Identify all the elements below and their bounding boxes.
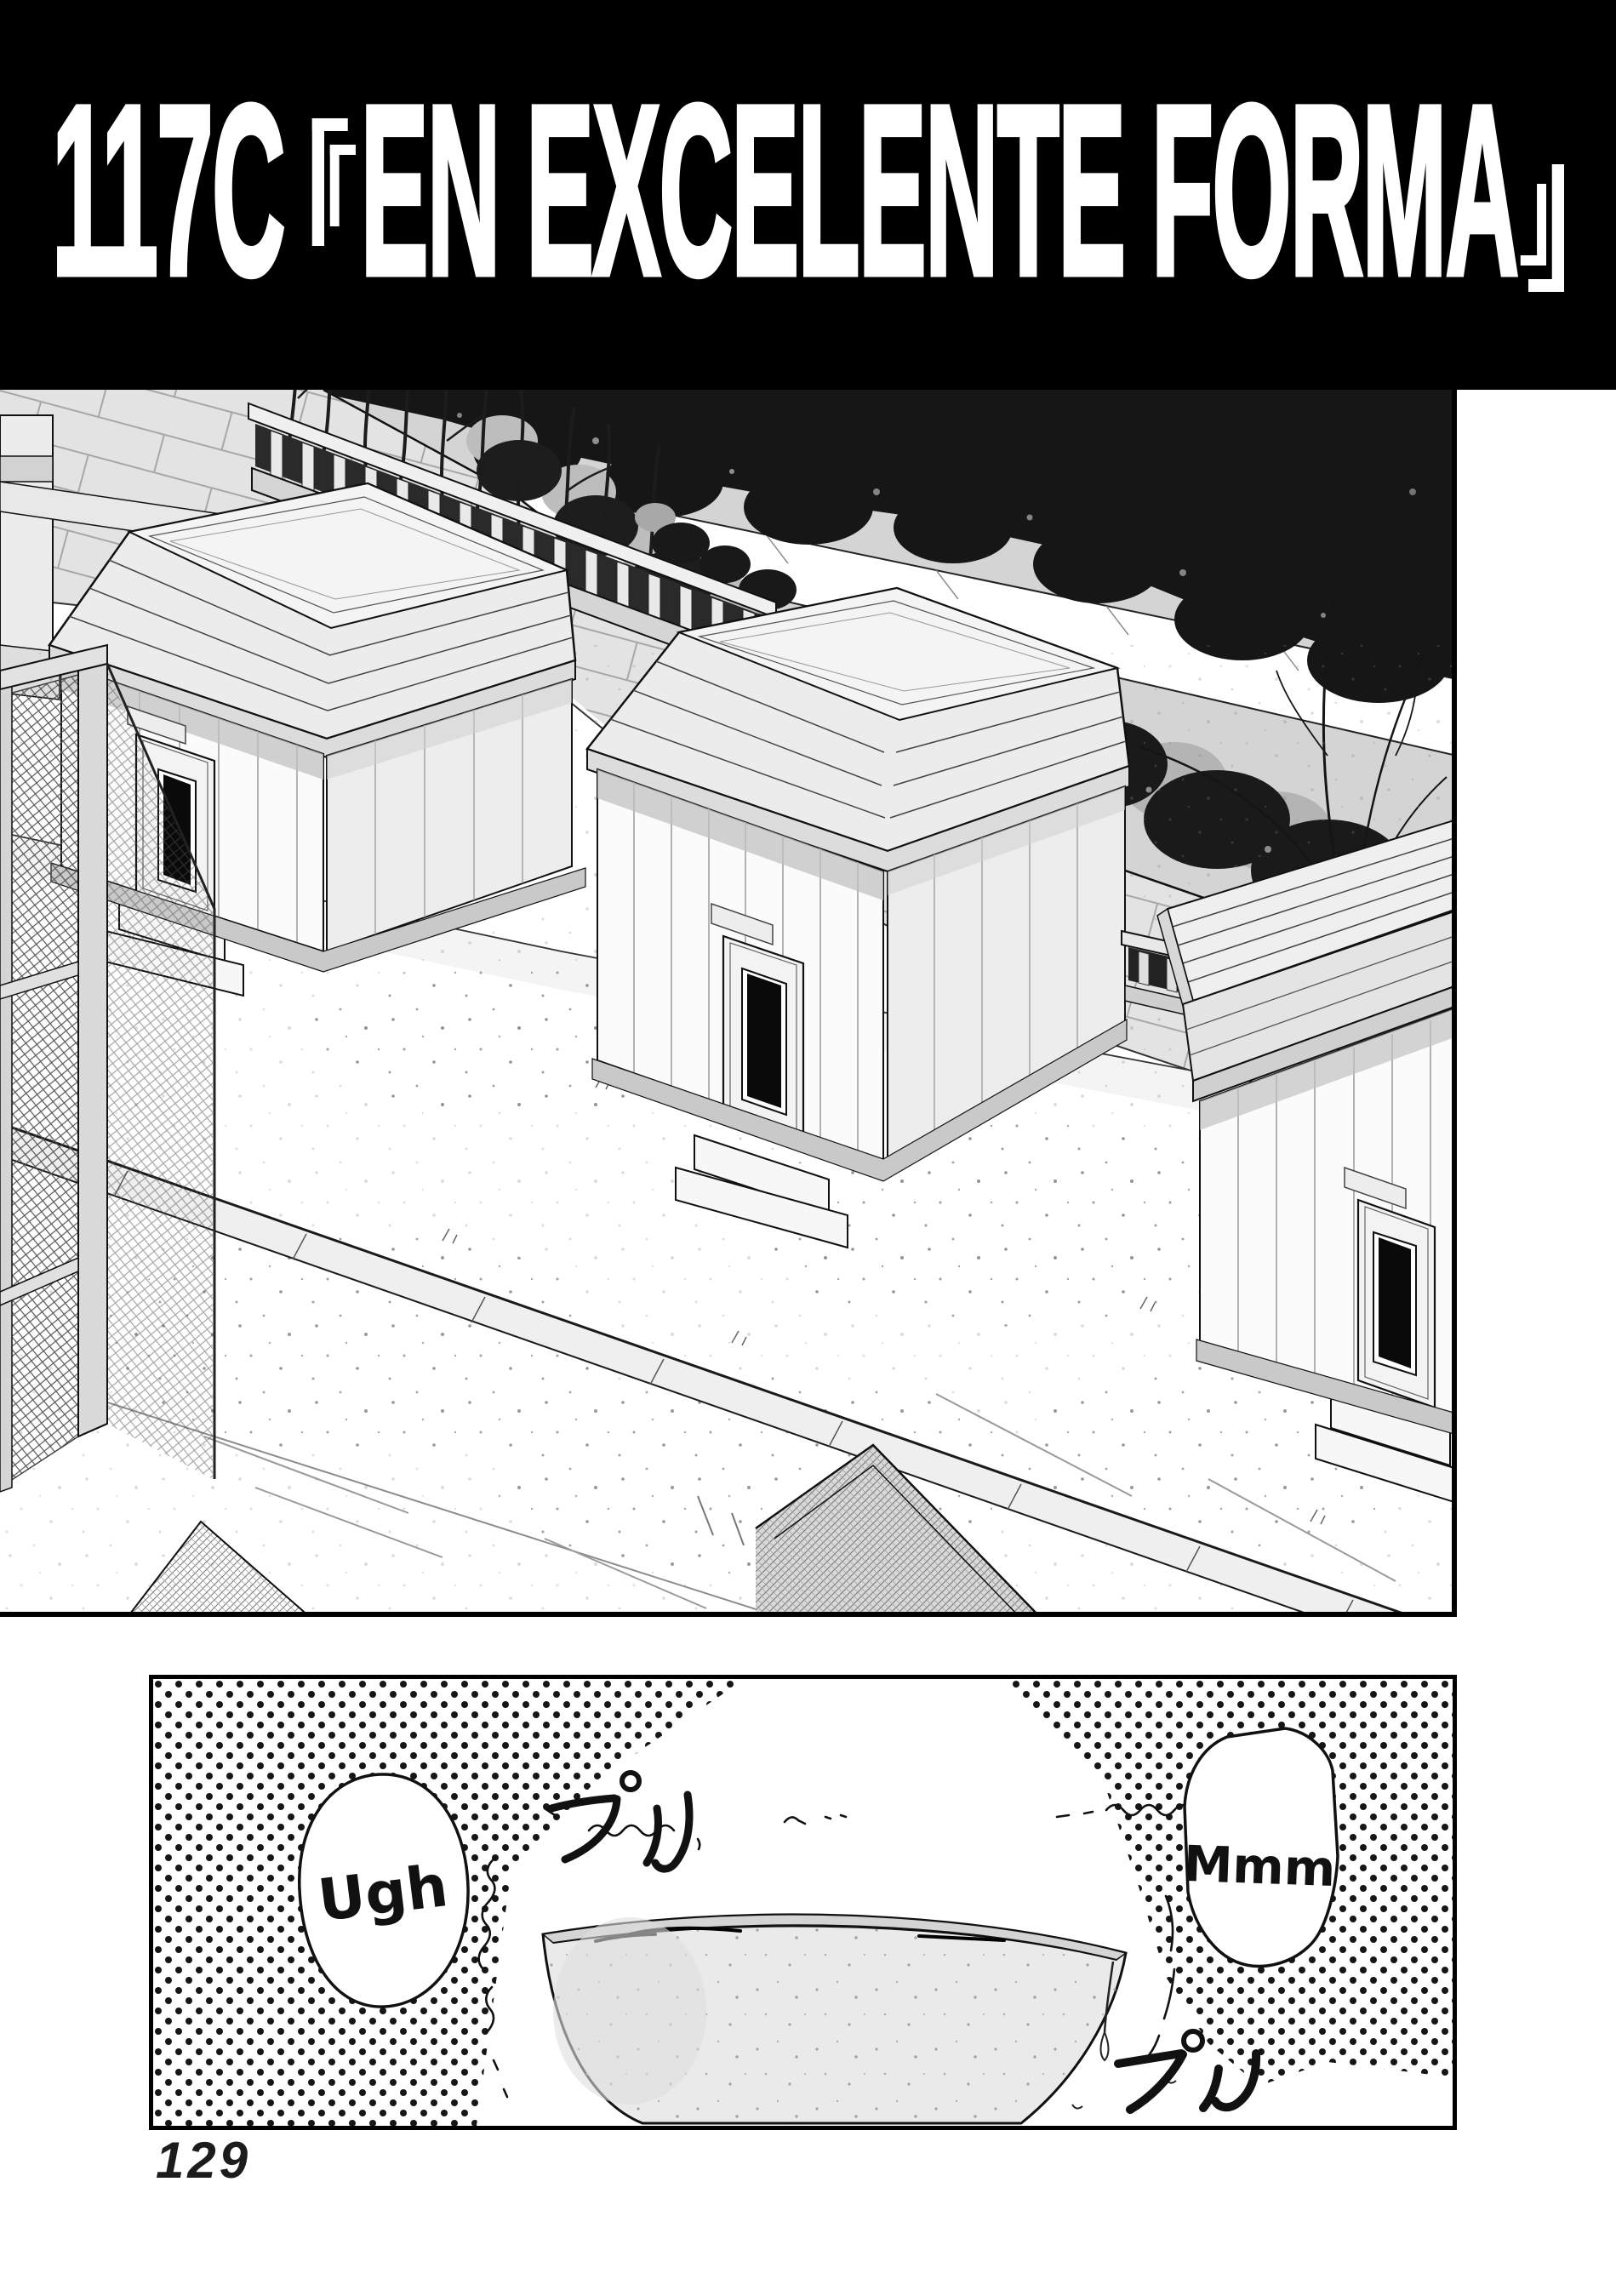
manga-page: 117C EN EXCELENTE FORMA (0, 0, 1616, 2296)
bottom-panel: Ugh Mmm (149, 1675, 1457, 2130)
chapter-number: 117C (52, 70, 284, 312)
title-banner: 117C EN EXCELENTE FORMA (0, 0, 1616, 390)
main-panel-border-bottom (0, 1612, 1457, 1617)
open-corner-bracket-icon (312, 118, 348, 246)
speech-bubble-right: Mmm (1183, 1728, 1338, 1966)
page-number: 129 (156, 2131, 251, 2190)
close-corner-bracket-icon (1528, 164, 1564, 292)
bottom-panel-art: Ugh Mmm (153, 1679, 1453, 2126)
main-panel (0, 390, 1457, 1617)
bubble-right-text: Mmm (1183, 1835, 1337, 1898)
chapter-title: EN EXCELENTE FORMA (361, 70, 1518, 312)
speech-bubble-left: Ugh (300, 1774, 468, 2007)
banner-title-row: 117C EN EXCELENTE FORMA (52, 70, 1564, 312)
main-panel-border-right (1452, 390, 1457, 1617)
main-panel-art (0, 390, 1457, 1617)
